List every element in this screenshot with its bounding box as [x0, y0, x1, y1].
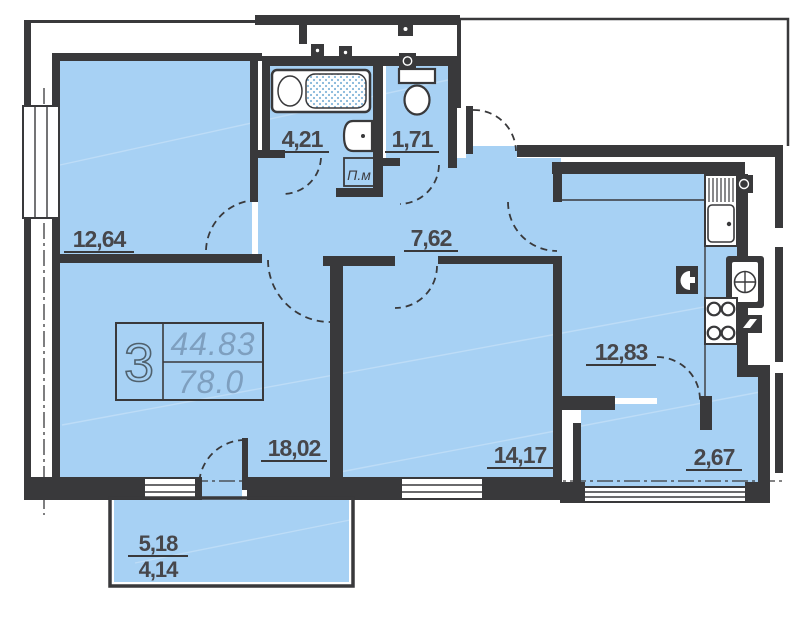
stove-icon [705, 298, 737, 344]
label-balcony-reduced: 4,14 [139, 557, 180, 582]
label-bathroom: 4,21 [282, 126, 324, 152]
bathtub-icon [272, 70, 370, 112]
label-loggia: 2,67 [694, 444, 735, 470]
label-hall: 7,62 [411, 225, 452, 251]
label-balcony-full: 5,18 [139, 531, 179, 556]
label-bedroom-1: 12,64 [73, 226, 127, 252]
washbasin-icon [344, 121, 372, 151]
floor-plan: П.м [0, 0, 802, 621]
stamp-room-count: 3 [124, 333, 154, 393]
kitchen-sink-icon [705, 175, 737, 246]
label-living: 18,02 [268, 435, 321, 461]
label-bedroom-2: 14,17 [494, 442, 547, 468]
shaft-label: П.м [347, 167, 371, 183]
gas-flag-icon [739, 315, 762, 333]
fan-icon [676, 266, 698, 294]
apartment-stamp: 3 44.83 78.0 [116, 323, 263, 400]
floor-plan-canvas: П.м [0, 0, 802, 621]
stamp-living-area: 44.83 [170, 326, 255, 362]
label-kitchen: 12,83 [595, 339, 648, 365]
label-wc: 1,71 [392, 126, 434, 152]
stamp-total-area: 78.0 [178, 364, 244, 400]
